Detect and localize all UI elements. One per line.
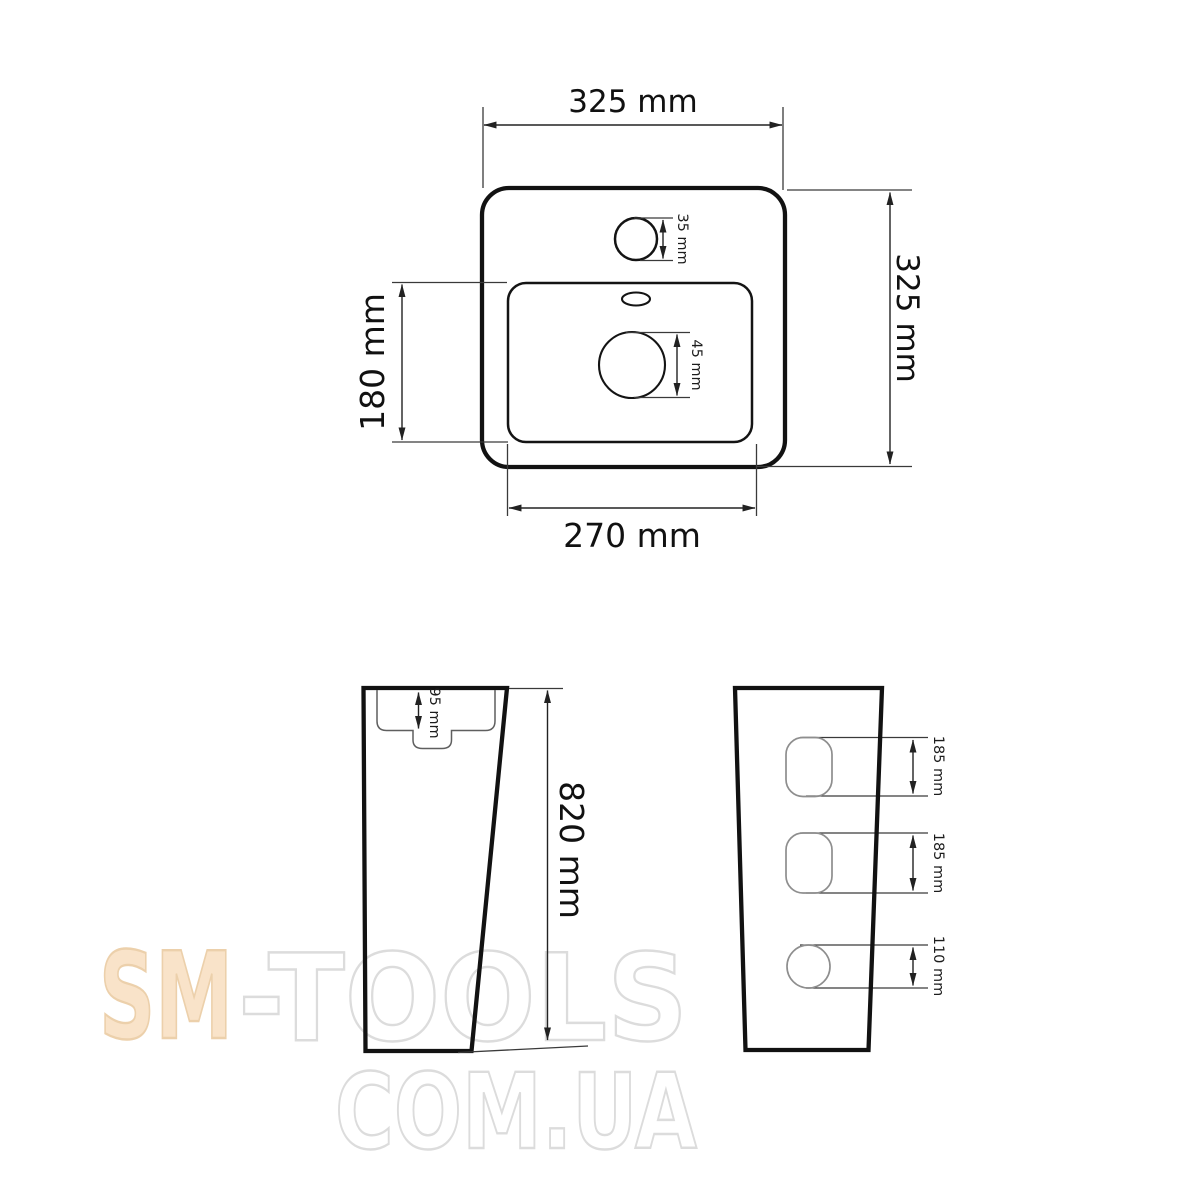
drain-hole-label: 45 mm [688, 339, 704, 390]
basin-width-label: 270 mm [563, 516, 701, 555]
watermark-brand-suffix: -TOOLS [238, 930, 688, 1069]
sink-dimension-diagram: SM -TOOLS COM.UA 325 mm 325 mm [0, 0, 1200, 1200]
recess-depth-label: 95 mm [426, 687, 442, 738]
pedestal-back-view: 185 mm 185 mm 110 mm [735, 688, 946, 1050]
sink-outer-outline [482, 188, 785, 467]
back-view-extension-lines [800, 738, 928, 989]
dim-overall-width: 325 mm [483, 84, 783, 190]
back-hole-top [786, 738, 832, 797]
dim-faucet-hole: 35 mm [634, 213, 690, 264]
faucet-hole [615, 218, 657, 260]
watermark-brand-prefix: SM [99, 928, 233, 1067]
basin-depth-label: 180 mm [353, 293, 392, 431]
sink-basin-outline [508, 283, 752, 442]
back-hole-top-label: 185 mm [930, 736, 946, 797]
dim-basin-width: 270 mm [508, 444, 757, 555]
watermark-domain: COM.UA [335, 1051, 697, 1173]
overall-width-label: 325 mm [568, 84, 697, 120]
dim-basin-depth: 180 mm [353, 283, 508, 443]
dim-back-hole-top: 185 mm [913, 736, 946, 797]
back-hole-middle [786, 833, 832, 893]
pedestal-height-label: 820 mm [552, 781, 591, 919]
dim-overall-depth: 325 mm [757, 190, 925, 467]
back-hole-middle-label: 185 mm [930, 833, 946, 894]
overall-depth-label: 325 mm [889, 253, 925, 382]
technical-drawing-canvas: SM -TOOLS COM.UA 325 mm 325 mm [0, 0, 1200, 1200]
back-hole-bottom [787, 945, 830, 988]
overflow-hole [622, 293, 650, 306]
back-hole-bottom-label: 110 mm [930, 936, 946, 997]
dim-back-hole-middle: 185 mm [913, 833, 946, 894]
drain-hole [599, 332, 665, 398]
sink-top-view: 325 mm 325 mm 180 mm 270 mm [353, 84, 925, 555]
faucet-hole-label: 35 mm [674, 213, 690, 264]
dim-recess-depth: 95 mm [419, 687, 443, 738]
pedestal-back-outline [735, 688, 882, 1050]
